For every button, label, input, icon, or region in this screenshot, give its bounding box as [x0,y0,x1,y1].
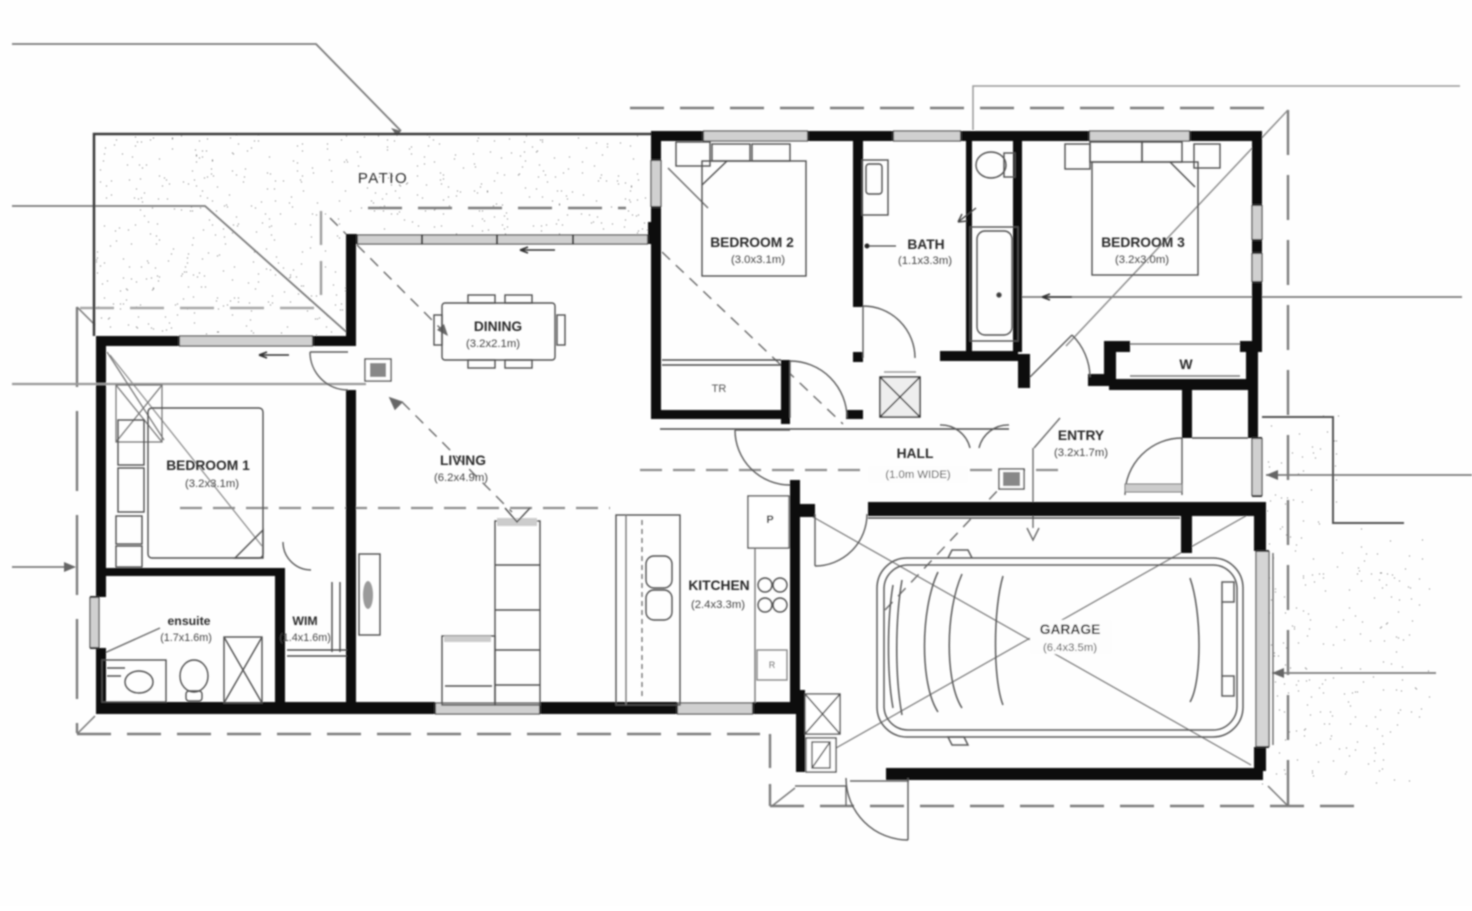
svg-text:R: R [769,660,776,670]
svg-text:(3.2x1.7m): (3.2x1.7m) [1054,447,1108,459]
svg-text:TR: TR [712,383,727,395]
svg-text:ensuite: ensuite [167,614,210,628]
svg-text:(1.7x1.6m): (1.7x1.6m) [160,632,212,644]
svg-text:(3.2x3.0m): (3.2x3.0m) [1115,254,1169,266]
svg-text:WIM: WIM [292,614,317,628]
svg-text:BEDROOM 2: BEDROOM 2 [710,235,794,250]
svg-text:HALL: HALL [897,446,934,461]
svg-text:DINING: DINING [474,319,522,334]
svg-text:(6.2x4.9m): (6.2x4.9m) [434,472,488,484]
svg-text:(3.2x2.1m): (3.2x2.1m) [466,338,520,350]
svg-text:BEDROOM 3: BEDROOM 3 [1101,235,1185,250]
svg-text:(3.2x3.1m): (3.2x3.1m) [185,478,239,490]
svg-text:GARAGE: GARAGE [1040,622,1101,637]
svg-text:LIVING: LIVING [440,453,486,468]
svg-text:(1.4x1.6m): (1.4x1.6m) [279,632,331,644]
svg-text:(1.1x3.3m): (1.1x3.3m) [898,255,952,267]
svg-text:(1.0m WIDE): (1.0m WIDE) [885,469,951,481]
svg-text:(3.0x3.1m): (3.0x3.1m) [731,254,785,266]
svg-text:(6.4x3.5m): (6.4x3.5m) [1043,642,1097,654]
svg-text:(2.4x3.3m): (2.4x3.3m) [691,599,745,611]
svg-text:W: W [1179,356,1193,372]
svg-text:PATIO: PATIO [358,170,408,187]
svg-text:BATH: BATH [907,237,944,252]
svg-text:ENTRY: ENTRY [1058,428,1104,443]
svg-text:BEDROOM 1: BEDROOM 1 [166,458,250,473]
svg-text:P: P [766,514,773,526]
svg-text:KITCHEN: KITCHEN [688,578,749,593]
